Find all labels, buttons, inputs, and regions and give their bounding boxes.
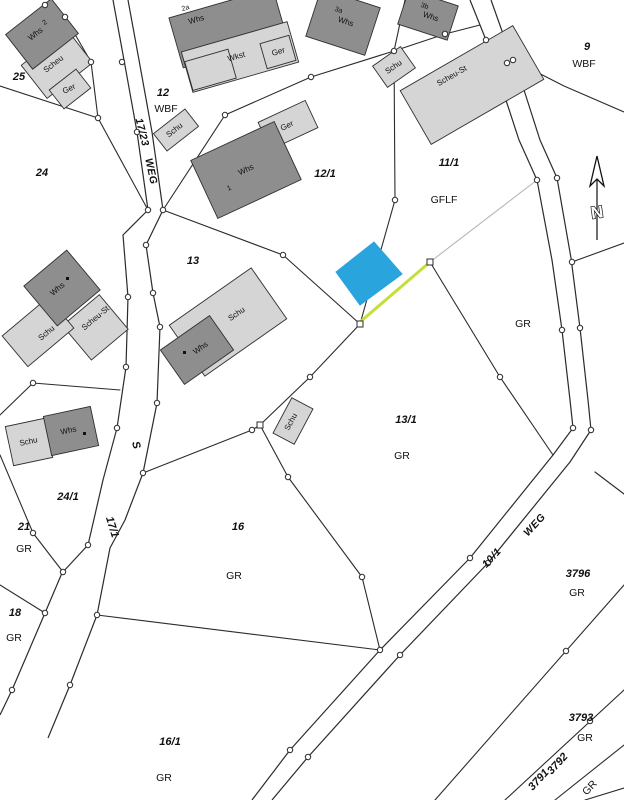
landuse-label-gr-16: GR xyxy=(226,570,242,582)
boundary-line xyxy=(0,383,120,415)
parcel-label-s: S xyxy=(129,440,143,451)
survey-marker xyxy=(30,380,35,385)
survey-marker xyxy=(157,324,162,329)
landuse-label-gr-18: GR xyxy=(6,632,22,644)
survey-marker xyxy=(9,687,14,692)
parcel-label-12-1: 12/1 xyxy=(314,168,335,180)
survey-marker xyxy=(95,115,100,120)
survey-marker xyxy=(391,48,396,53)
boundary-line xyxy=(572,243,624,262)
survey-marker xyxy=(305,754,310,759)
landuse-label-gr-13-1: GR xyxy=(394,450,410,462)
survey-marker xyxy=(140,470,145,475)
survey-marker xyxy=(588,427,593,432)
survey-marker xyxy=(125,294,130,299)
parcel-label-16-1: 16/1 xyxy=(159,736,180,748)
survey-marker xyxy=(483,37,488,42)
parcel-label-3796: 3796 xyxy=(566,568,591,580)
road-17-23-east-edge xyxy=(48,0,163,738)
survey-marker xyxy=(30,530,35,535)
survey-marker xyxy=(307,374,312,379)
north-arrow-letter: N xyxy=(590,202,605,223)
survey-marker xyxy=(563,648,568,653)
survey-marker xyxy=(67,682,72,687)
survey-marker xyxy=(442,31,447,36)
cadastral-map[interactable]: N 25241212/111/191313/124/121161816/1379… xyxy=(0,0,624,800)
landuse-label-gr-16-1: GR xyxy=(156,772,172,784)
survey-marker xyxy=(397,652,402,657)
road-label-weg-east: WEG xyxy=(521,511,548,539)
survey-marker xyxy=(308,74,313,79)
survey-marker xyxy=(88,59,93,64)
survey-marker xyxy=(569,259,574,264)
survey-marker xyxy=(377,647,382,652)
boundary-line xyxy=(595,472,624,494)
parcel-label-13-1: 13/1 xyxy=(395,414,416,426)
survey-marker xyxy=(94,612,99,617)
parcel-label-21: 21 xyxy=(17,521,30,533)
parcel-label-17-1: 17/1 xyxy=(103,515,121,539)
survey-marker xyxy=(60,569,65,574)
road-label-weg-west: WEG xyxy=(142,157,159,186)
landuse-label-gr-3791: GR xyxy=(580,778,600,798)
parcel-label-11-1: 11/1 xyxy=(439,157,460,169)
cadastral-map-viewport[interactable]: N 25241212/111/191313/124/121161816/1379… xyxy=(0,0,624,800)
landuse-label-gr-3793: GR xyxy=(577,732,593,744)
parcel-label-9: 9 xyxy=(584,41,591,53)
survey-marker xyxy=(42,610,47,615)
building-dot-24-1 xyxy=(83,432,86,435)
survey-marker xyxy=(249,427,254,432)
survey-marker xyxy=(287,747,292,752)
parcel-label-24-1: 24/1 xyxy=(56,491,78,503)
north-arrow: N xyxy=(590,156,605,240)
parcel-label-25: 25 xyxy=(12,71,26,83)
survey-marker xyxy=(123,364,128,369)
landuse-label-gr-3796: GR xyxy=(569,587,585,599)
survey-marker xyxy=(62,14,67,19)
survey-marker xyxy=(222,112,227,117)
survey-marker xyxy=(577,325,582,330)
landuse-label-gr-east: GR xyxy=(515,318,531,330)
parcel-label-24: 24 xyxy=(35,167,48,179)
parcel-label-13: 13 xyxy=(187,255,199,267)
survey-marker xyxy=(280,252,285,257)
building-number-2a: 2a xyxy=(181,4,191,13)
landuse-label-gflf: GFLF xyxy=(431,194,458,206)
survey-marker xyxy=(154,400,159,405)
boundary-line xyxy=(0,585,45,613)
survey-marker xyxy=(534,177,539,182)
boundary-line xyxy=(143,425,260,473)
boundary-line xyxy=(260,425,380,650)
survey-square xyxy=(257,422,263,428)
road-label-10-1: 10/1 xyxy=(480,546,504,571)
landuse-label-gr-21: GR xyxy=(16,543,32,555)
boundary-line xyxy=(505,690,624,800)
building-dot-13 xyxy=(183,351,186,354)
survey-marker xyxy=(359,574,364,579)
survey-marker xyxy=(114,425,119,430)
parcel-label-12: 12 xyxy=(157,87,169,99)
landuse-label-wbf-12: WBF xyxy=(154,103,177,115)
survey-marker xyxy=(42,2,47,7)
boundary-line xyxy=(430,262,553,455)
survey-square xyxy=(357,321,363,327)
survey-marker xyxy=(497,374,502,379)
boundary-line xyxy=(97,615,380,650)
parcel-label-16: 16 xyxy=(232,521,245,533)
survey-marker xyxy=(119,59,124,64)
survey-marker xyxy=(504,60,509,65)
survey-marker xyxy=(467,555,472,560)
gray-boundary-line xyxy=(430,180,537,262)
survey-marker xyxy=(150,290,155,295)
building-scheu-st-top xyxy=(400,26,544,145)
landuse-label-wbf-9: WBF xyxy=(572,58,595,70)
survey-marker xyxy=(570,425,575,430)
parcel-label-3793: 3793 xyxy=(569,712,593,724)
survey-marker xyxy=(143,242,148,247)
survey-square xyxy=(427,259,433,265)
survey-marker xyxy=(554,175,559,180)
survey-marker xyxy=(510,57,515,62)
survey-marker xyxy=(285,474,290,479)
survey-marker xyxy=(392,197,397,202)
survey-marker xyxy=(85,542,90,547)
building-dot-13w xyxy=(66,277,69,280)
survey-marker xyxy=(559,327,564,332)
parcel-label-18: 18 xyxy=(9,607,22,619)
survey-marker xyxy=(145,207,150,212)
survey-marker xyxy=(160,207,165,212)
